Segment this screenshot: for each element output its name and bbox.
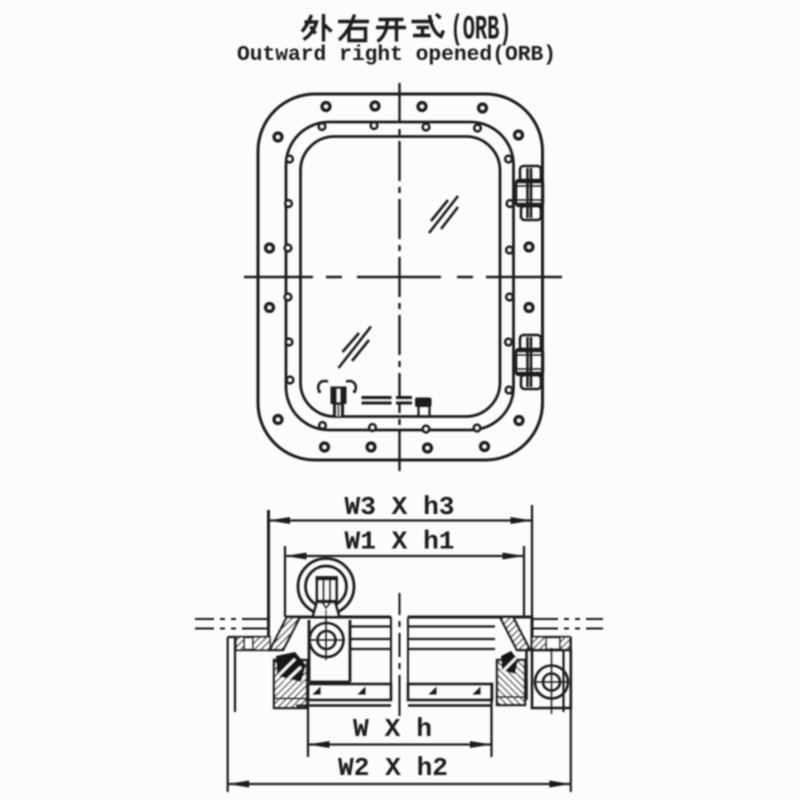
svg-text:Outward right opened(ORB): Outward right opened(ORB) — [237, 44, 556, 67]
svg-text:W3 X h3: W3 X h3 — [345, 492, 455, 522]
svg-text:W1 X h1: W1 X h1 — [345, 527, 455, 557]
svg-text:W2 X h2: W2 X h2 — [338, 753, 448, 783]
svg-text:W X h: W X h — [353, 714, 432, 744]
